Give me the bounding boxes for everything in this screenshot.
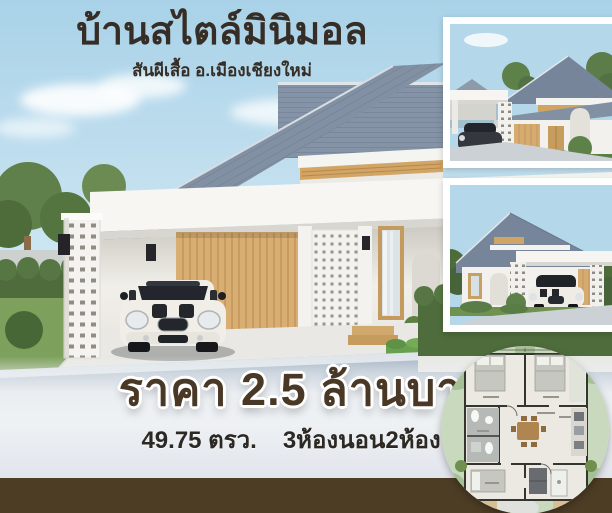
poster-title: บ้านสไตล์มินิมอล bbox=[16, 10, 428, 54]
mini-cooper-car bbox=[111, 280, 235, 361]
topiary-ball bbox=[5, 311, 43, 349]
title-block: บ้านสไตล์มินิมอล สันผีเสื้อ อ.เมืองเชียง… bbox=[16, 10, 428, 84]
wall-lamp bbox=[362, 236, 370, 250]
floor-plan-circle bbox=[441, 346, 609, 513]
house-photo-mid-right bbox=[443, 178, 612, 332]
wall-lamp bbox=[58, 234, 70, 255]
poster-subtitle: สันผีเสื้อ อ.เมืองเชียงใหม่ bbox=[16, 57, 428, 84]
wall-lamp bbox=[146, 244, 156, 261]
area-text: 49.75 ตรว. bbox=[141, 420, 256, 459]
bed bbox=[475, 354, 505, 391]
breeze-block-panel bbox=[312, 230, 358, 326]
glass-door bbox=[378, 226, 404, 320]
real-estate-poster: ราคา 2.5 ล้านบาท 49.75 ตรว. 3ห้องนอน2ห้อ… bbox=[0, 0, 612, 513]
pillar bbox=[298, 226, 312, 334]
breeze-block-column bbox=[58, 213, 103, 358]
house-photo-top-right bbox=[443, 17, 612, 168]
bed bbox=[535, 354, 565, 391]
